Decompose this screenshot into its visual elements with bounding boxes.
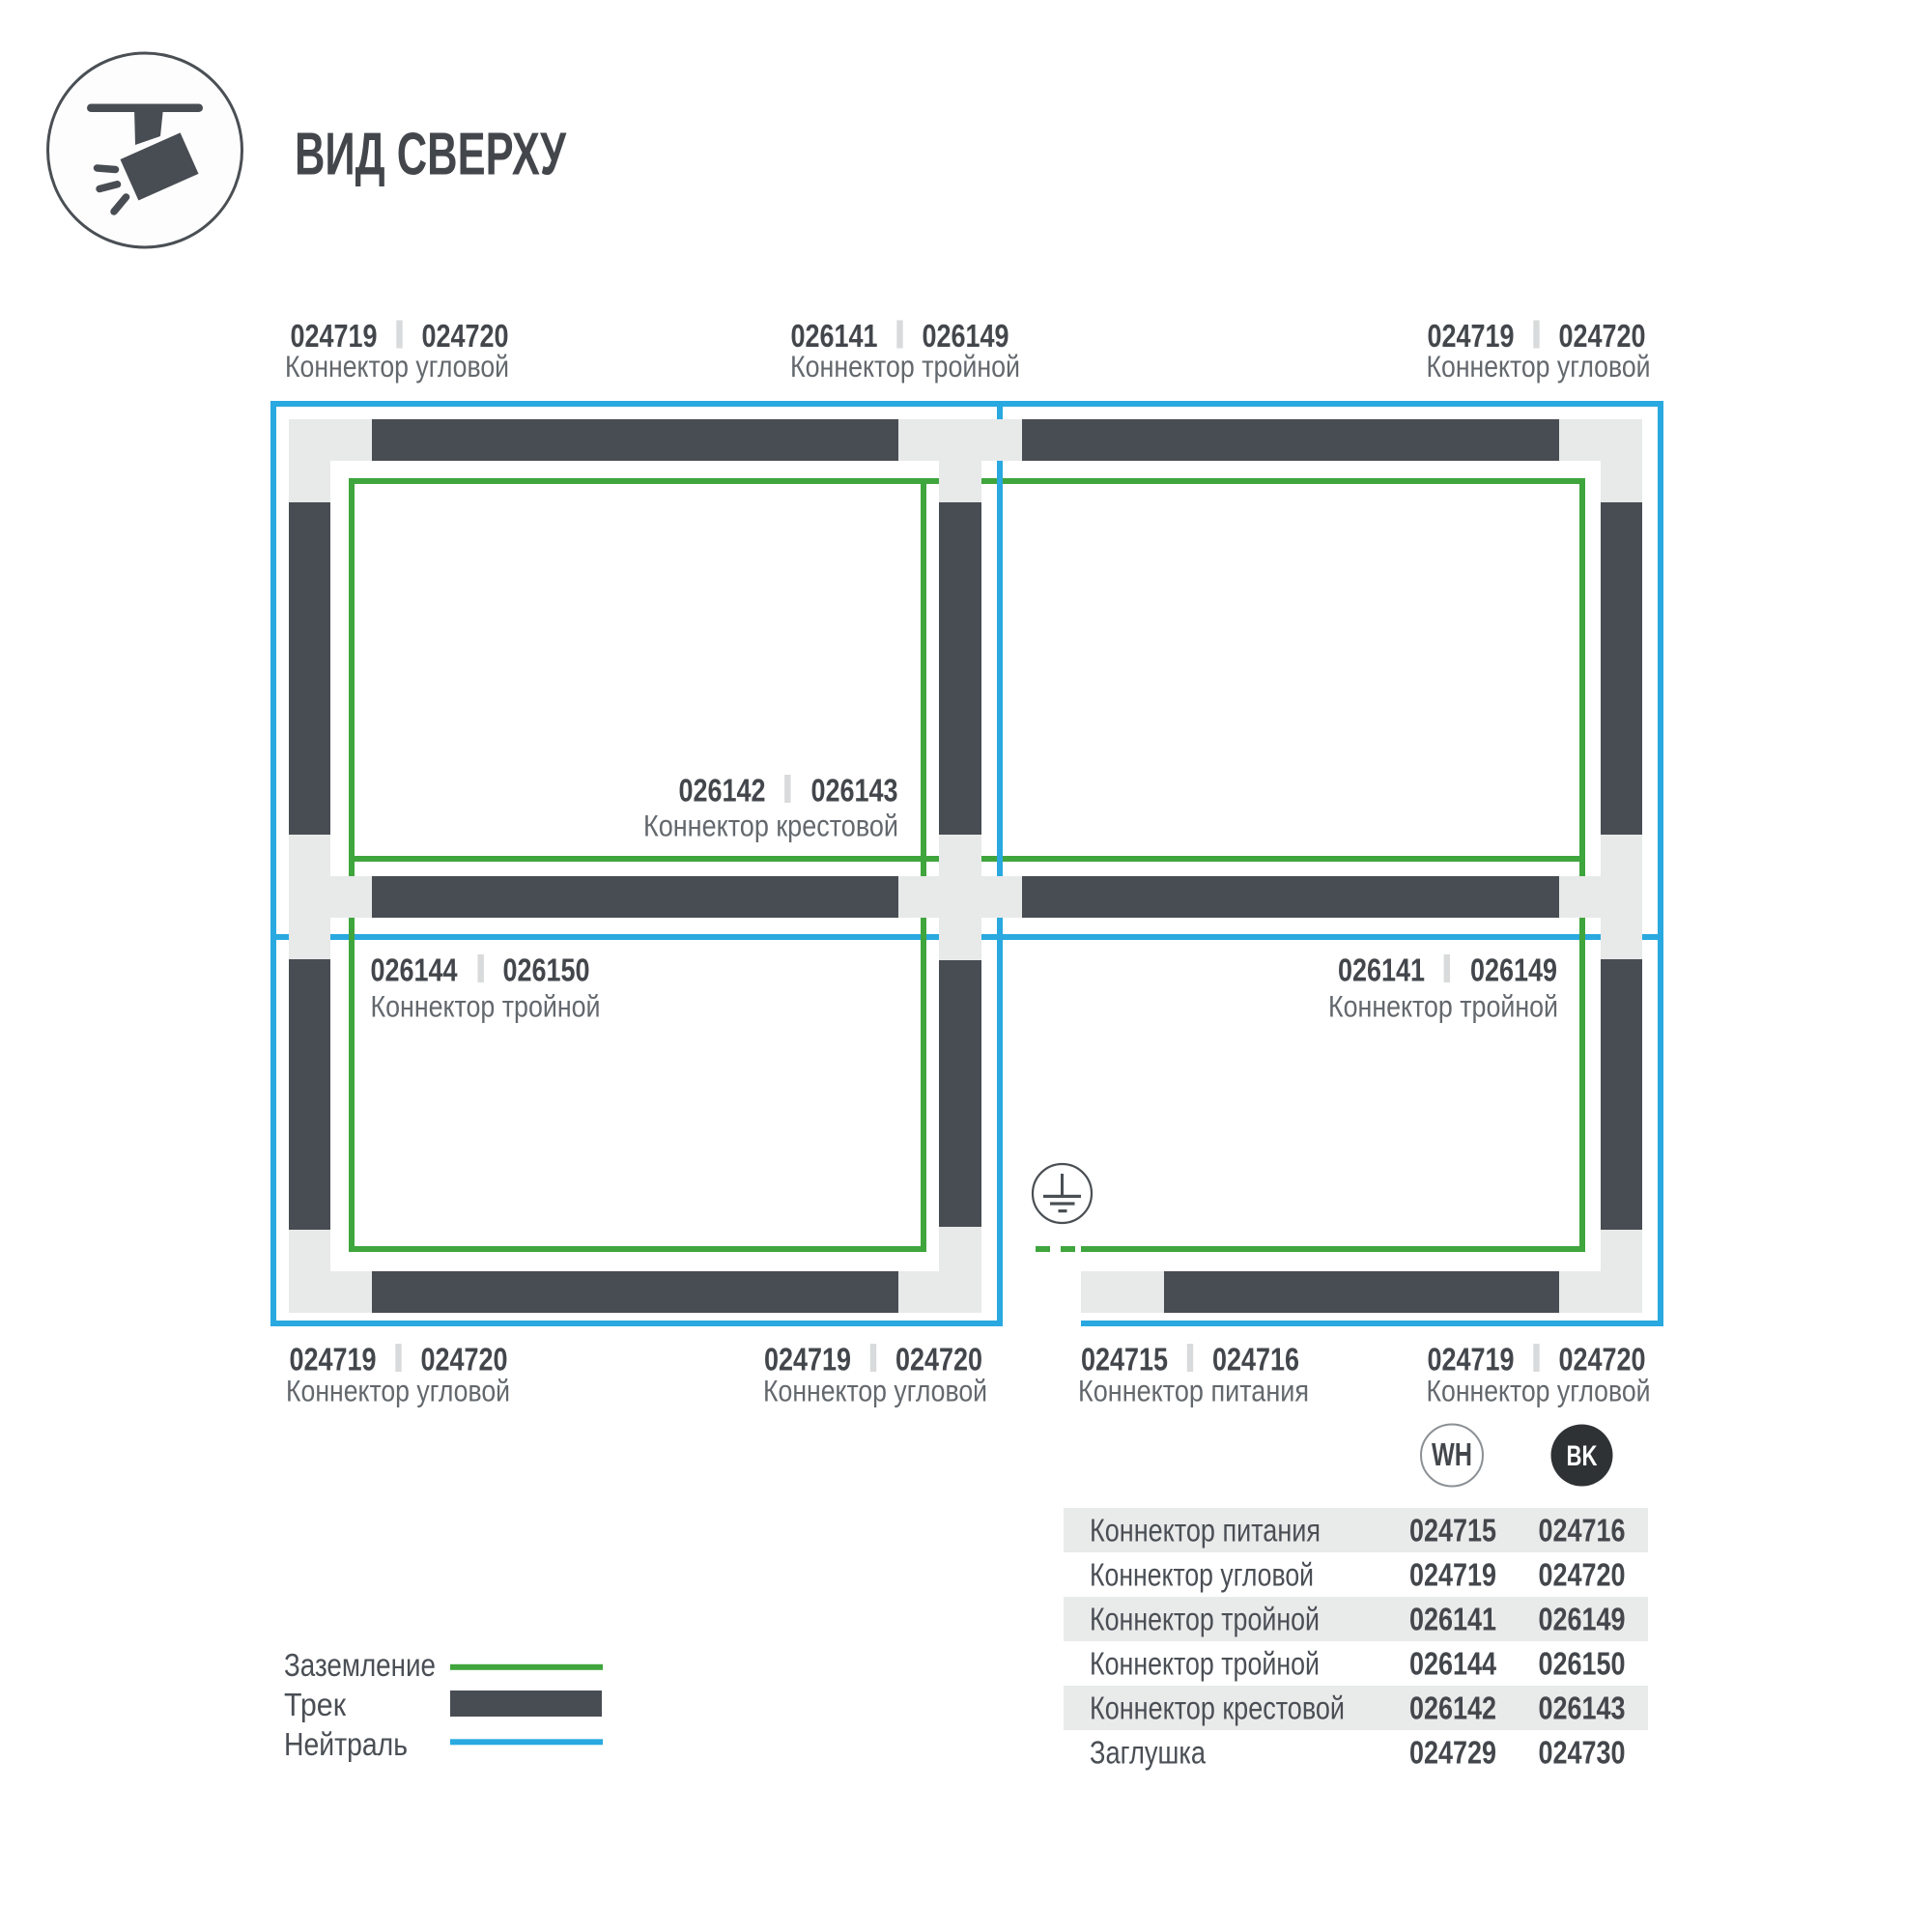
svg-text:024715: 024715 xyxy=(1409,1513,1496,1548)
svg-text:Коннектор тройной: Коннектор тройной xyxy=(1328,990,1558,1024)
svg-text:Коннектор тройной: Коннектор тройной xyxy=(1090,1646,1320,1682)
svg-text:026142: 026142 xyxy=(1409,1690,1496,1726)
svg-text:024719: 024719 xyxy=(1428,318,1515,354)
svg-text:Заглушка: Заглушка xyxy=(1090,1735,1207,1771)
svg-text:026143: 026143 xyxy=(1539,1690,1626,1726)
svg-text:026143: 026143 xyxy=(811,773,898,809)
svg-text:026141: 026141 xyxy=(1338,952,1425,988)
svg-text:026144: 026144 xyxy=(371,952,459,988)
svg-text:024720: 024720 xyxy=(1559,1342,1646,1378)
svg-text:Коннектор угловой: Коннектор угловой xyxy=(763,1375,987,1408)
svg-text:026150: 026150 xyxy=(503,952,590,988)
svg-text:024720: 024720 xyxy=(895,1342,982,1378)
svg-text:026149: 026149 xyxy=(923,318,1009,354)
svg-text:026144: 026144 xyxy=(1409,1646,1497,1682)
svg-text:026150: 026150 xyxy=(1539,1646,1626,1682)
svg-text:BK: BK xyxy=(1567,1440,1599,1472)
svg-text:024715: 024715 xyxy=(1081,1342,1168,1378)
svg-text:024716: 024716 xyxy=(1539,1513,1626,1548)
svg-text:024720: 024720 xyxy=(1539,1557,1626,1593)
svg-text:Нейтраль: Нейтраль xyxy=(284,1726,408,1762)
svg-text:Коннектор крестовой: Коннектор крестовой xyxy=(643,810,898,843)
svg-text:024720: 024720 xyxy=(422,318,509,354)
svg-text:ВИД СВЕРХУ: ВИД СВЕРХУ xyxy=(295,121,567,188)
svg-text:024719: 024719 xyxy=(291,318,378,354)
svg-text:024719: 024719 xyxy=(1428,1342,1515,1378)
svg-text:026141: 026141 xyxy=(1409,1602,1496,1637)
svg-text:Коннектор угловой: Коннектор угловой xyxy=(1427,350,1651,384)
svg-text:026149: 026149 xyxy=(1470,952,1557,988)
svg-text:Коннектор крестовой: Коннектор крестовой xyxy=(1090,1690,1345,1726)
svg-text:024729: 024729 xyxy=(1409,1735,1496,1771)
svg-text:024720: 024720 xyxy=(421,1342,508,1378)
svg-text:Коннектор питания: Коннектор питания xyxy=(1078,1375,1309,1408)
svg-text:026141: 026141 xyxy=(791,318,878,354)
svg-text:Трек: Трек xyxy=(284,1687,347,1722)
svg-text:Коннектор угловой: Коннектор угловой xyxy=(1090,1557,1314,1593)
svg-text:024719: 024719 xyxy=(1409,1557,1496,1593)
svg-text:024719: 024719 xyxy=(290,1342,377,1378)
svg-text:024716: 024716 xyxy=(1212,1342,1299,1378)
svg-text:WH: WH xyxy=(1432,1436,1472,1472)
svg-text:Коннектор тройной: Коннектор тройной xyxy=(371,990,601,1024)
svg-text:Коннектор тройной: Коннектор тройной xyxy=(1090,1602,1320,1637)
svg-text:Коннектор питания: Коннектор питания xyxy=(1090,1513,1321,1548)
svg-text:Коннектор тройной: Коннектор тройной xyxy=(790,350,1020,384)
svg-text:026149: 026149 xyxy=(1539,1602,1626,1637)
svg-text:Коннектор угловой: Коннектор угловой xyxy=(285,350,509,384)
svg-text:024719: 024719 xyxy=(764,1342,851,1378)
svg-text:Заземление: Заземление xyxy=(284,1647,436,1683)
svg-text:024720: 024720 xyxy=(1559,318,1646,354)
svg-text:024730: 024730 xyxy=(1539,1735,1626,1771)
svg-text:026142: 026142 xyxy=(679,773,766,809)
svg-text:Коннектор угловой: Коннектор угловой xyxy=(286,1375,510,1408)
svg-text:Коннектор угловой: Коннектор угловой xyxy=(1427,1375,1651,1408)
